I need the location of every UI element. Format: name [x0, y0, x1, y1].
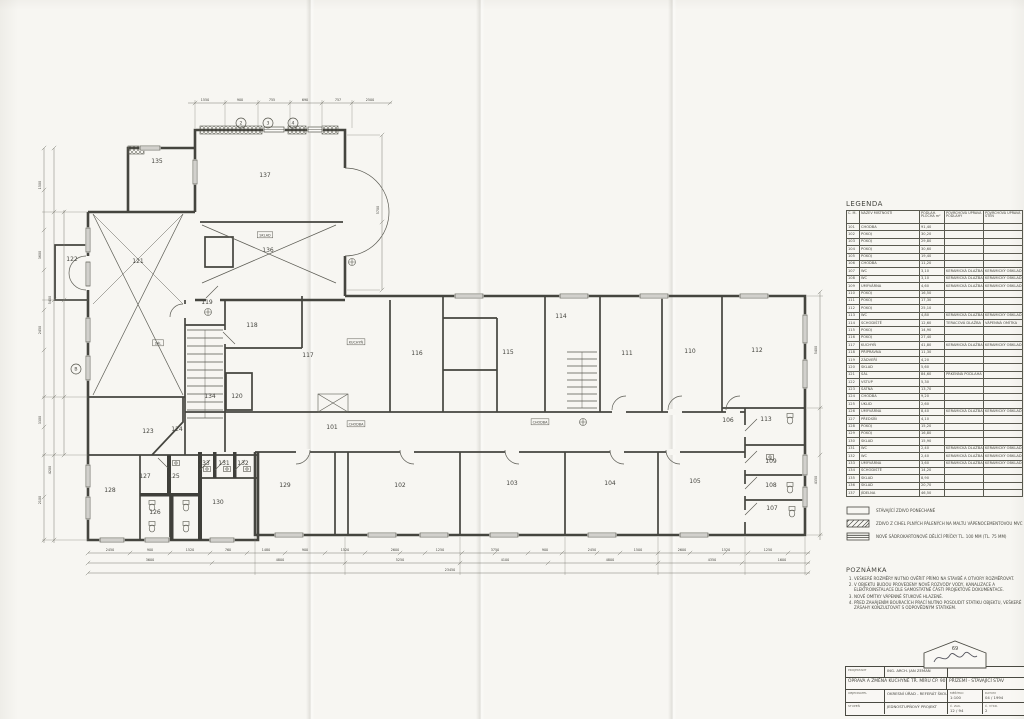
legend-cell: 16,50	[920, 290, 945, 297]
room-schedule-table: Č. M.NÁZEV MÍSTNOSTIPODLAH. PLOCHA m²POV…	[846, 210, 1023, 497]
room-number-label: 136	[262, 247, 274, 254]
legend-cell	[984, 438, 1023, 445]
legend-cell	[945, 253, 984, 260]
legend-cell: 129	[847, 430, 860, 437]
legend-cell: POKOJ	[860, 246, 920, 253]
legend-cell: 112	[847, 305, 860, 312]
room-number-label: 103	[506, 480, 518, 487]
scanned-floorplan-sheet: 1550900755690757250024509001520760148090…	[0, 0, 1024, 719]
legend-row: 113WC4,80KERAMICKÁ DLAŽBAKERAMICKÝ OBKLA…	[847, 312, 1023, 319]
legend-cell: SKLAD	[860, 475, 920, 482]
legend-cell: POKOJ	[860, 305, 920, 312]
legend-cell	[984, 327, 1023, 334]
legend-cell: KERAMICKÝ OBKLAD	[984, 275, 1023, 282]
legend-cell	[984, 490, 1023, 497]
legend-row: 136SKLAD20,70	[847, 482, 1023, 489]
room-number-label: 125	[168, 473, 180, 480]
legend-cell: 113	[847, 312, 860, 319]
room-number-label: 113	[760, 416, 772, 423]
legend-row: 117KUCHYŇ41,80KERAMICKÁ DLAŽBAKERAMICKÝ …	[847, 342, 1023, 349]
legend-row: 112POKOJ25,10	[847, 305, 1023, 312]
dimension-number: 1550	[201, 98, 209, 102]
legend-cell	[984, 416, 1023, 423]
dimension-number: 5250	[396, 558, 404, 562]
legend-cell: KERAMICKÝ OBKLAD	[984, 268, 1023, 275]
legend-row: 126UMÝVÁRNA8,40KERAMICKÁ DLAŽBAKERAMICKÝ…	[847, 408, 1023, 415]
legend-cell	[945, 260, 984, 267]
projektant-label: PROJEKTANT	[848, 668, 882, 672]
room-number-label: 121	[132, 258, 144, 265]
legend-cell	[984, 364, 1023, 371]
legend-cell: TERACOVÁ DLAŽBA	[945, 320, 984, 327]
legend-cell: 4,10	[920, 416, 945, 423]
legend-cell: 125	[847, 401, 860, 408]
symbol-label: ZDIVO Z CIHEL PLNÝCH PÁLENÝCH NA MALTU V…	[876, 521, 1024, 526]
legend-cell: KUCHYŇ	[860, 342, 920, 349]
legend-cell: 111	[847, 297, 860, 304]
legend-cell: 14,90	[920, 327, 945, 334]
room-number-label: 102	[394, 482, 406, 489]
dimension-number: 2450	[588, 548, 596, 552]
legend-cell	[984, 246, 1023, 253]
dimension-number: 2600	[391, 548, 399, 552]
legend-cell	[945, 349, 984, 356]
room-number-label: 132	[237, 460, 249, 467]
legend-cell: SKLAD	[860, 438, 920, 445]
boxed-tag-label: KUCHYŇ	[349, 340, 364, 345]
legend-cell: PŘÍPRAVNA	[860, 349, 920, 356]
room-number-label: 122	[66, 256, 78, 263]
objednatel-name: OKRESNÍ ÚŘAD - REFERÁT ŠKOLSTVÍ	[887, 691, 945, 696]
legend-cell: ŠATNA	[860, 386, 920, 393]
legend-cell	[984, 482, 1023, 489]
legend-row: 123ŠATNA13,70	[847, 386, 1023, 393]
legend-cell	[945, 334, 984, 341]
dimension-number: 3600	[146, 558, 154, 562]
legend-row: 132WC2,40KERAMICKÁ DLAŽBAKERAMICKÝ OBKLA…	[847, 453, 1023, 460]
room-number-label: 130	[212, 499, 224, 506]
legend-cell: POKOJ	[860, 423, 920, 430]
legend-row: 102POKOJ30,20	[847, 231, 1023, 238]
legend-cell: KERAMICKÁ DLAŽBA	[945, 275, 984, 282]
legend-cell	[945, 327, 984, 334]
note-item: NOVÉ OMÍTKY VÁPENNÉ ŠTUKOVÉ HLAZENÉ.	[854, 594, 1024, 599]
legend-cell: 116	[847, 334, 860, 341]
legend-row: 130SKLAD15,90	[847, 438, 1023, 445]
stamp-number: 69	[952, 646, 958, 652]
dimension-number: 4350	[708, 558, 716, 562]
legend-cell	[984, 305, 1023, 312]
dimension-number: 900	[237, 98, 243, 102]
legend-cell: 106	[847, 260, 860, 267]
room-number-label: 117	[302, 352, 314, 359]
staircase-steps	[187, 330, 597, 418]
legend-cell: 15,90	[920, 438, 945, 445]
legend-symbols: STÁVAJÍCÍ ZDIVO PONECHANÉ ZDIVO Z CIHEL …	[846, 506, 1023, 541]
room-number-label: 133	[198, 460, 210, 467]
legend-cell: 5,60	[920, 364, 945, 371]
dimension-number: 900	[542, 548, 548, 552]
objednatel-label: OBJEDNATEL	[848, 691, 882, 695]
legend-cell	[984, 386, 1023, 393]
legend-cell: ÚKLID	[860, 401, 920, 408]
legend-row: 104POKOJ30,60	[847, 246, 1023, 253]
legend-cell: 91,40	[920, 224, 945, 231]
legend-cell	[945, 231, 984, 238]
legend-cell	[984, 231, 1023, 238]
legend-cell: 122	[847, 379, 860, 386]
legend-cell: 103	[847, 238, 860, 245]
legend-cell	[984, 475, 1023, 482]
legend-cell: POKOJ	[860, 253, 920, 260]
legend-cell: VÁPENNÁ OMÍTKA	[984, 320, 1023, 327]
legend-cell: PŘEDSÍŇ	[860, 416, 920, 423]
legend-cell: 108	[847, 275, 860, 282]
dimension-number: 2100	[38, 496, 42, 504]
legend-cell: 117	[847, 342, 860, 349]
legend-cell	[945, 467, 984, 474]
legend-cell: 110	[847, 290, 860, 297]
legend-cell	[945, 475, 984, 482]
legend-row: 131WC2,40KERAMICKÁ DLAŽBAKERAMICKÝ OBKLA…	[847, 445, 1023, 452]
notes-list: VEŠKERÉ ROZMĚRY NUTNO OVĚŘIT PŘÍMO NA ST…	[846, 576, 1024, 610]
legend-cell: WC	[860, 453, 920, 460]
legend-column-header: POVRCHOVÁ ÚPRAVA PODLAHY	[945, 211, 984, 224]
dimension-number: 2450	[106, 548, 114, 552]
room-number-label: 124	[171, 426, 183, 433]
door-swings	[69, 168, 757, 515]
legend-cell: KERAMICKÝ OBKLAD	[984, 453, 1023, 460]
legend-cell: 20,70	[920, 482, 945, 489]
dimension-number: 1500	[38, 181, 42, 189]
axis-markers	[205, 259, 587, 426]
legend-panel: LEGENDA Č. M.NÁZEV MÍSTNOSTIPODLAH. PLOC…	[846, 200, 1023, 545]
dimension-number: 900	[147, 548, 153, 552]
dimension-number: 3600	[38, 251, 42, 259]
legend-cell	[945, 224, 984, 231]
legend-cell	[984, 357, 1023, 364]
legend-cell: 13,70	[920, 386, 945, 393]
legend-cell: 101	[847, 224, 860, 231]
boxed-tag-label: SKLAD	[259, 234, 271, 238]
dimension-number: 2600	[678, 548, 686, 552]
legend-cell: KERAMICKÁ DLAŽBA	[945, 445, 984, 452]
legend-row: 110POKOJ16,50	[847, 290, 1023, 297]
legend-row: 122VSTUP5,30	[847, 379, 1023, 386]
note-item: PŘED ZAHÁJENÍM BOURACÍCH PRACÍ NUTNO POS…	[854, 600, 1024, 610]
boxed-tag-label: CHODBA	[533, 421, 549, 425]
notes-block: POZNÁMKA VEŠKERÉ ROZMĚRY NUTNO OVĚŘIT PŘ…	[846, 566, 1024, 611]
legend-cell: 3,60	[920, 460, 945, 467]
legend-cell	[984, 401, 1023, 408]
room-number-label: 107	[766, 505, 778, 512]
boxed-tag-label: CHODBA	[349, 423, 365, 427]
dimension-number: 4100	[501, 558, 509, 562]
legend-row: 125ÚKLID2,60	[847, 401, 1023, 408]
room-number-label: 135	[151, 158, 163, 165]
room-number-label: 120	[231, 393, 243, 400]
room-number-label: 111	[621, 350, 633, 357]
legend-cell: 25,10	[920, 305, 945, 312]
legend-cell: 14,20	[920, 467, 945, 474]
legend-cell	[945, 238, 984, 245]
legend-row: 118PŘÍPRAVNA11,30	[847, 349, 1023, 356]
legend-cell: 135	[847, 475, 860, 482]
legend-cell: 5,30	[920, 379, 945, 386]
legend-cell: POKOJ	[860, 334, 920, 341]
symbol-label: NOVÉ SÁDROKARTONOVÉ DĚLÍCÍ PŘÍČKY TL. 10…	[876, 534, 1006, 539]
room-number-label: 134	[204, 393, 216, 400]
legend-column-header: PODLAH. PLOCHA m²	[920, 211, 945, 224]
legend-cell: 11,20	[920, 260, 945, 267]
room-number-label: 131	[218, 460, 230, 467]
legend-cell: 4,80	[920, 312, 945, 319]
legend-cell: SCHODIŠTĚ	[860, 320, 920, 327]
legend-cell	[984, 224, 1023, 231]
legend-cell	[945, 290, 984, 297]
legend-row: 106CHODBA11,20	[847, 260, 1023, 267]
legend-row: 129POKOJ16,80	[847, 430, 1023, 437]
legend-row: 135SKLAD8,90	[847, 475, 1023, 482]
legend-cell	[984, 260, 1023, 267]
dimension-number: 900	[302, 548, 308, 552]
legend-cell: 130	[847, 438, 860, 445]
room-number-label: 104	[604, 480, 616, 487]
room-number-label: 115	[502, 349, 514, 356]
grid-bubble-label: 2	[240, 121, 243, 127]
room-number-label: 114	[555, 313, 567, 320]
legend-cell: SÁL	[860, 371, 920, 378]
legend-cell	[945, 379, 984, 386]
legend-cell: KERAMICKÁ DLAŽBA	[945, 312, 984, 319]
datum-value: 04 / 1994	[985, 695, 1022, 700]
legend-cell: WC	[860, 445, 920, 452]
legend-cell: KERAMICKÝ OBKLAD	[984, 445, 1023, 452]
legend-cell: KERAMICKÝ OBKLAD	[984, 460, 1023, 467]
legend-row: 108WC3,10KERAMICKÁ DLAŽBAKERAMICKÝ OBKLA…	[847, 275, 1023, 282]
legend-row: 105POKOJ19,40	[847, 253, 1023, 260]
legend-cell: 2,60	[920, 401, 945, 408]
cislo-vykresu-value: 2	[985, 708, 1022, 713]
legend-cell	[945, 364, 984, 371]
legend-row: 107WC3,10KERAMICKÁ DLAŽBAKERAMICKÝ OBKLA…	[847, 268, 1023, 275]
legend-cell: 29,80	[920, 238, 945, 245]
legend-cell: 15,20	[920, 423, 945, 430]
legend-cell	[984, 290, 1023, 297]
dimension-number: 3750	[491, 548, 499, 552]
legend-cell: 124	[847, 393, 860, 400]
room-number-label: 110	[684, 348, 696, 355]
dimension-number: 4350	[814, 476, 818, 484]
legend-cell	[984, 253, 1023, 260]
legend-cell	[984, 371, 1023, 378]
room-number-label: 126	[149, 509, 161, 516]
legend-row: 111POKOJ17,30	[847, 297, 1023, 304]
dimension-chains	[42, 100, 823, 575]
legend-cell: 3,10	[920, 275, 945, 282]
legend-cell: JÍDELNA	[860, 490, 920, 497]
existing-masonry-swatch	[846, 506, 870, 515]
legend-cell	[945, 490, 984, 497]
legend-cell: VSTUP	[860, 379, 920, 386]
dimension-number: 5400	[814, 346, 818, 354]
dimension-number: 760	[225, 548, 231, 552]
room-number-label: 119	[201, 299, 213, 306]
dimension-number: 1520	[341, 548, 349, 552]
dimension-number: 757	[335, 98, 341, 102]
room-number-label: 123	[142, 428, 154, 435]
dimension-number: 755	[269, 98, 275, 102]
zakazka-value: 12 / 94	[950, 708, 980, 713]
legend-cell: POKOJ	[860, 297, 920, 304]
room-number-label: 127	[139, 473, 151, 480]
legend-cell: 19,40	[920, 253, 945, 260]
legend-cell: 2,40	[920, 453, 945, 460]
legend-cell: 8,40	[920, 408, 945, 415]
dimension-number: 1600	[778, 558, 786, 562]
legend-cell: KERAMICKÁ DLAŽBA	[945, 460, 984, 467]
legend-cell: UMÝVÁRNA	[860, 283, 920, 290]
legend-cell: KERAMICKÝ OBKLAD	[984, 408, 1023, 415]
legend-cell: 128	[847, 423, 860, 430]
legend-cell	[984, 393, 1023, 400]
room-number-label: 105	[689, 478, 701, 485]
legend-cell: SKLAD	[860, 482, 920, 489]
dimension-number: 690	[302, 98, 308, 102]
legend-cell: WC	[860, 275, 920, 282]
grid-bubble-label: 3	[267, 121, 270, 127]
stupen-value: JEDNOSTUPŇOVÝ PROJEKT	[887, 704, 945, 709]
legend-cell: WC	[860, 268, 920, 275]
legend-cell: 107	[847, 268, 860, 275]
legend-cell: WC	[860, 312, 920, 319]
legend-cell: 115	[847, 327, 860, 334]
legend-cell: 109	[847, 283, 860, 290]
legend-cell	[984, 334, 1023, 341]
dimension-number: 1250	[436, 548, 444, 552]
legend-cell	[945, 416, 984, 423]
room-number-label: 128	[104, 487, 116, 494]
note-item: V OBJEKTU BUDOU PROVEDENY NOVÉ ROZVODY V…	[854, 582, 1024, 592]
legend-cell: KERAMICKÁ DLAŽBA	[945, 283, 984, 290]
legend-column-header: POVRCHOVÁ ÚPRAVA STĚN	[984, 211, 1023, 224]
dimension-number: 2450	[38, 326, 42, 334]
legend-row: 137JÍDELNA46,50	[847, 490, 1023, 497]
legend-cell: KERAMICKÁ DLAŽBA	[945, 342, 984, 349]
dimension-number: 5400	[48, 296, 52, 304]
legend-cell: 114	[847, 320, 860, 327]
legend-cell: 27,40	[920, 334, 945, 341]
room-number-label: 109	[765, 458, 777, 465]
legend-cell	[945, 401, 984, 408]
sanitary-fixtures	[149, 414, 795, 533]
notes-title: POZNÁMKA	[846, 566, 1024, 574]
dimension-number: 23450	[445, 568, 456, 572]
legend-cell	[984, 423, 1023, 430]
legend-cell: KERAMICKÝ OBKLAD	[984, 283, 1023, 290]
note-item: VEŠKERÉ ROZMĚRY NUTNO OVĚŘIT PŘÍMO NA ST…	[854, 576, 1024, 581]
legend-cell: 11,30	[920, 349, 945, 356]
legend-cell: POKOJ	[860, 290, 920, 297]
legend-cell: POKOJ	[860, 430, 920, 437]
legend-cell: 119	[847, 357, 860, 364]
meritko-value: 1:100	[950, 695, 980, 700]
legend-row: 109UMÝVÁRNA4,60KERAMICKÁ DLAŽBAKERAMICKÝ…	[847, 283, 1023, 290]
legend-row: 114SCHODIŠTĚ12,60TERACOVÁ DLAŽBAVÁPENNÁ …	[847, 320, 1023, 327]
legend-cell: 118	[847, 349, 860, 356]
legend-cell: 126	[847, 408, 860, 415]
legend-row: 128POKOJ15,20	[847, 423, 1023, 430]
dimension-number: 1520	[722, 548, 730, 552]
legend-cell: KERAMICKÝ OBKLAD	[984, 342, 1023, 349]
legend-cell	[945, 386, 984, 393]
legend-cell	[945, 246, 984, 253]
room-number-label: 106	[722, 417, 734, 424]
room-number-label: 116	[411, 350, 423, 357]
legend-cell: POKOJ	[860, 238, 920, 245]
legend-row: 119ZÁDVEŘÍ4,20	[847, 357, 1023, 364]
stupen-label: STUPEŇ	[848, 704, 882, 708]
dimension-number: 4200	[48, 466, 52, 474]
dimension-number: 5700	[376, 206, 380, 214]
legend-cell: 127	[847, 416, 860, 423]
drawing-subtitle: PŘÍZEMÍ - STÁVAJÍCÍ STAV	[949, 679, 1004, 684]
legend-row: 116POKOJ27,40	[847, 334, 1023, 341]
legend-cell	[945, 430, 984, 437]
legend-cell	[945, 297, 984, 304]
legend-cell: 123	[847, 386, 860, 393]
legend-row: 134SCHODIŠTĚ14,20	[847, 467, 1023, 474]
drawing-title: OPRAVA A ZMĚNA KUCHYNĚ TŘ. MÍRU ČP. 90	[848, 679, 945, 684]
legend-cell: POKOJ	[860, 231, 920, 238]
symbol-existing-masonry: STÁVAJÍCÍ ZDIVO PONECHANÉ	[846, 506, 1023, 515]
legend-cell: 30,20	[920, 231, 945, 238]
symbol-partition: NOVÉ SÁDROKARTONOVÉ DĚLÍCÍ PŘÍČKY TL. 10…	[846, 532, 1023, 541]
legend-cell: KERAMICKÁ DLAŽBA	[945, 268, 984, 275]
demolition-x-marks	[93, 214, 348, 412]
legend-cell: 4,60	[920, 283, 945, 290]
dimension-number: 1500	[634, 548, 642, 552]
legend-title: LEGENDA	[846, 200, 1023, 208]
legend-column-header: NÁZEV MÍSTNOSTI	[860, 211, 920, 224]
legend-cell: KERAMICKÁ DLAŽBA	[945, 453, 984, 460]
legend-cell: 136	[847, 482, 860, 489]
symbol-label: STÁVAJÍCÍ ZDIVO PONECHANÉ	[876, 508, 935, 513]
legend-cell	[945, 393, 984, 400]
legend-row: 103POKOJ29,80	[847, 238, 1023, 245]
legend-cell: KERAMICKÁ DLAŽBA	[945, 408, 984, 415]
legend-cell: 104	[847, 246, 860, 253]
legend-column-header: Č. M.	[847, 211, 860, 224]
legend-cell: 132	[847, 453, 860, 460]
legend-cell: 131	[847, 445, 860, 452]
legend-cell	[984, 238, 1023, 245]
legend-cell	[984, 379, 1023, 386]
legend-cell: 4,20	[920, 357, 945, 364]
legend-cell	[984, 349, 1023, 356]
legend-cell: 9,20	[920, 393, 945, 400]
legend-row: 127PŘEDSÍŇ4,10	[847, 416, 1023, 423]
room-number-label: 118	[246, 322, 258, 329]
legend-cell: 121	[847, 371, 860, 378]
legend-row: 120SKLAD5,60	[847, 364, 1023, 371]
legend-cell	[945, 305, 984, 312]
symbol-new-masonry: ZDIVO Z CIHEL PLNÝCH PÁLENÝCH NA MALTU V…	[846, 519, 1023, 528]
legend-cell: 120	[847, 364, 860, 371]
legend-cell	[984, 430, 1023, 437]
legend-cell: 84,60	[920, 371, 945, 378]
legend-cell: 41,80	[920, 342, 945, 349]
